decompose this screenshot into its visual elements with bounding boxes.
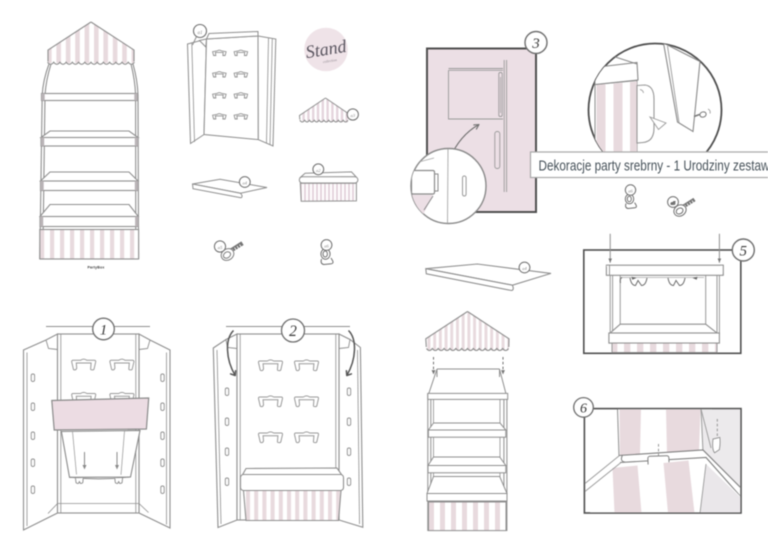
svg-text:5: 5 [740,244,748,260]
svg-text:a4: a4 [522,266,527,271]
svg-text:a6: a6 [324,244,329,249]
svg-text:3: 3 [531,36,540,52]
svg-text:2: 2 [289,323,297,340]
svg-text:PartyBox: PartyBox [88,266,105,270]
svg-text:a5: a5 [671,201,676,206]
svg-text:a3: a3 [351,113,356,118]
svg-text:a5: a5 [218,245,223,250]
svg-text:1: 1 [100,323,108,339]
svg-text:6: 6 [580,401,587,416]
svg-text:Dekoracje party srebrny - 1 Ur: Dekoracje party srebrny - 1 Urodziny zes… [539,158,768,175]
svg-text:a1: a1 [198,31,203,36]
svg-text:a2: a2 [316,168,321,173]
svg-text:a4: a4 [243,181,248,186]
svg-text:a6: a6 [628,189,633,194]
